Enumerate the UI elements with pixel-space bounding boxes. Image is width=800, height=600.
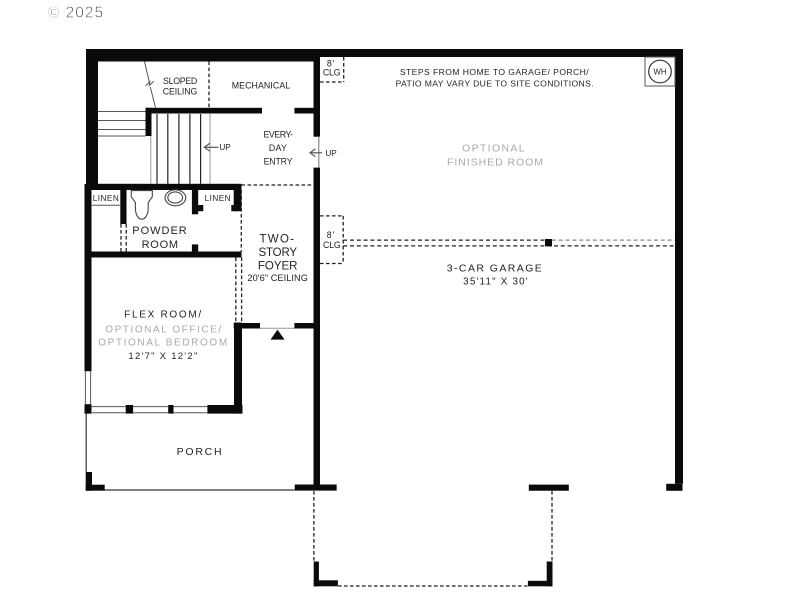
svg-text:3-CAR GARAGE: 3-CAR GARAGE (447, 262, 544, 274)
svg-text:PATIO MAY VARY DUE TO SITE CON: PATIO MAY VARY DUE TO SITE CONDITIONS. (396, 79, 594, 89)
svg-text:© 2025: © 2025 (48, 5, 104, 22)
svg-text:35'11" X 30': 35'11" X 30' (463, 277, 529, 288)
svg-text:UP: UP (219, 143, 231, 152)
svg-text:20'6" CEILING: 20'6" CEILING (247, 273, 308, 283)
svg-text:DAY: DAY (269, 143, 287, 153)
svg-text:ENTRY: ENTRY (264, 157, 293, 167)
svg-text:12'7" X 12'2": 12'7" X 12'2" (128, 351, 198, 362)
svg-text:WH: WH (654, 67, 667, 76)
svg-text:STEPS FROM HOME TO GARAGE/ POR: STEPS FROM HOME TO GARAGE/ PORCH/ (400, 67, 589, 77)
svg-text:EVERY-: EVERY- (263, 130, 293, 140)
svg-text:PORCH: PORCH (177, 446, 224, 458)
svg-text:ROOM: ROOM (142, 239, 179, 251)
svg-text:UP: UP (325, 149, 337, 158)
svg-text:OPTIONAL OFFICE/: OPTIONAL OFFICE/ (105, 325, 223, 336)
svg-text:OPTIONAL: OPTIONAL (462, 142, 526, 154)
svg-text:FINISHED ROOM: FINISHED ROOM (447, 156, 544, 168)
svg-text:CEILING: CEILING (163, 87, 198, 97)
svg-text:LINEN: LINEN (205, 194, 231, 203)
svg-text:POWDER: POWDER (132, 225, 188, 237)
svg-text:FLEX ROOM/: FLEX ROOM/ (124, 310, 203, 321)
svg-text:SLOPED: SLOPED (163, 76, 197, 86)
svg-text:MECHANICAL: MECHANICAL (232, 80, 291, 90)
svg-text:FOYER: FOYER (258, 261, 298, 273)
svg-text:8': 8' (327, 230, 336, 240)
svg-text:OPTIONAL BEDROOM: OPTIONAL BEDROOM (98, 338, 229, 349)
svg-text:TWO-: TWO- (260, 233, 296, 245)
svg-text:STORY: STORY (258, 247, 297, 259)
svg-text:LINEN: LINEN (93, 194, 119, 203)
svg-text:CLG: CLG (323, 67, 341, 77)
svg-text:CLG: CLG (323, 240, 341, 250)
